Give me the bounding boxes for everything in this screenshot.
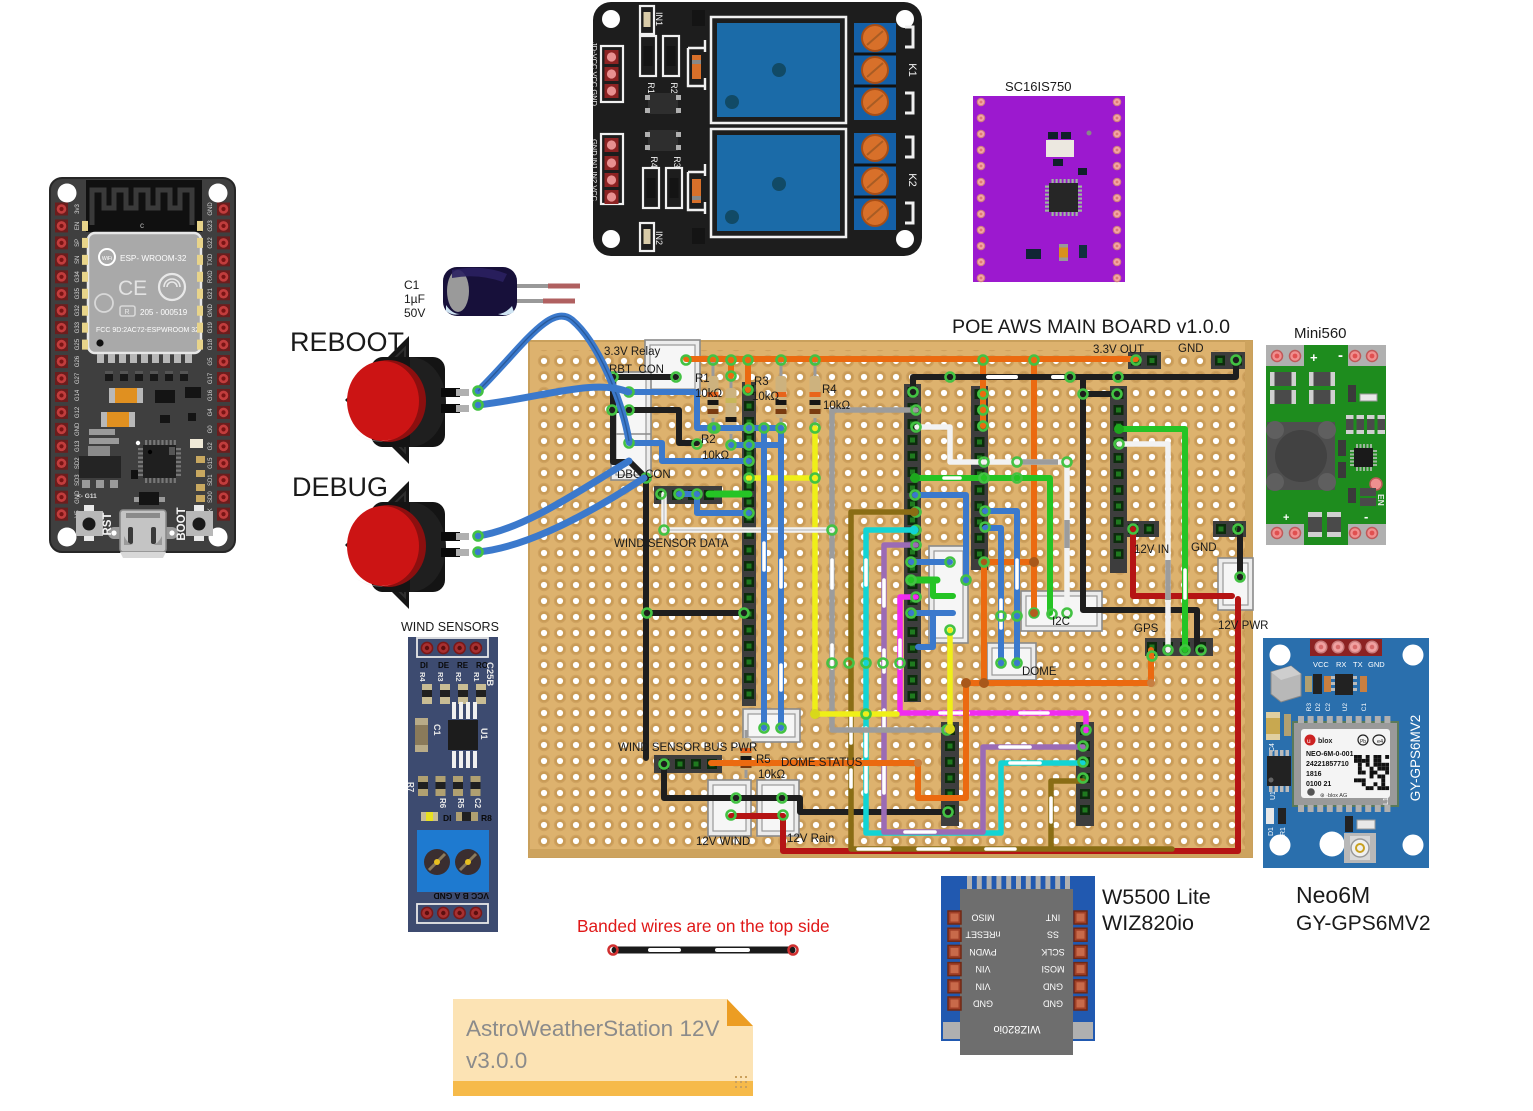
svg-text:VCC: VCC bbox=[1313, 660, 1329, 669]
svg-text:<- G11: <- G11 bbox=[77, 493, 97, 500]
svg-text:G35: G35 bbox=[75, 287, 81, 299]
svg-text:GND: GND bbox=[1178, 343, 1204, 355]
svg-text:G21: G21 bbox=[208, 287, 214, 299]
svg-text:W5500 Lite: W5500 Lite bbox=[1102, 885, 1211, 909]
svg-text:CE: CE bbox=[118, 277, 147, 300]
svg-text:G4: G4 bbox=[208, 408, 214, 417]
svg-text:SP: SP bbox=[75, 239, 81, 247]
svg-text:TX: TX bbox=[1353, 660, 1363, 669]
svg-text:12V IN: 12V IN bbox=[1134, 544, 1169, 556]
svg-text:GND: GND bbox=[1043, 981, 1064, 991]
svg-text:R1: R1 bbox=[1280, 827, 1287, 836]
svg-text:C1: C1 bbox=[1361, 703, 1368, 712]
svg-text:WIND SENSORS: WIND SENSORS bbox=[401, 620, 499, 634]
svg-text:IN2: IN2 bbox=[654, 231, 664, 245]
svg-text:DI: DI bbox=[420, 661, 428, 670]
svg-text:DEBUG: DEBUG bbox=[292, 472, 388, 502]
svg-text:GND: GND bbox=[75, 422, 81, 436]
svg-text:e4: e4 bbox=[1377, 739, 1383, 745]
svg-text:GND: GND bbox=[1191, 542, 1217, 554]
svg-text:IN1: IN1 bbox=[654, 12, 664, 26]
svg-text:RBT_CON: RBT_CON bbox=[609, 364, 664, 376]
svg-text:DOME STATUS: DOME STATUS bbox=[781, 757, 863, 769]
svg-text:GND: GND bbox=[208, 202, 214, 216]
svg-text:RX: RX bbox=[1336, 660, 1346, 669]
svg-text:Neo6M: Neo6M bbox=[1296, 882, 1370, 908]
svg-text:J1: J1 bbox=[1336, 845, 1343, 853]
svg-text:AstroWeatherStation 12V: AstroWeatherStation 12V bbox=[466, 1016, 719, 1041]
svg-text:-: - bbox=[1364, 509, 1368, 524]
svg-text:G0: G0 bbox=[208, 425, 214, 434]
svg-text:POE AWS MAIN BOARD v1.0.0: POE AWS MAIN BOARD v1.0.0 bbox=[952, 316, 1230, 338]
svg-text:VCC B A GND: VCC B A GND bbox=[433, 891, 489, 901]
svg-text:R1: R1 bbox=[695, 373, 710, 385]
svg-text:10kΩ: 10kΩ bbox=[695, 388, 723, 400]
svg-text:D2: D2 bbox=[1315, 703, 1322, 712]
svg-text:R2: R2 bbox=[454, 672, 463, 682]
svg-text:U1: U1 bbox=[479, 728, 489, 740]
svg-text:24221857710: 24221857710 bbox=[1306, 761, 1349, 768]
svg-text:SD1: SD1 bbox=[208, 474, 214, 486]
svg-text:R4: R4 bbox=[649, 156, 659, 168]
svg-text:C25B: C25B bbox=[484, 662, 495, 686]
svg-text:DOME: DOME bbox=[1022, 666, 1057, 678]
svg-text:c: c bbox=[140, 221, 144, 230]
svg-text:SCLK: SCLK bbox=[1041, 947, 1065, 957]
svg-text:BOOT: BOOT bbox=[176, 507, 188, 540]
svg-text:10kΩ: 10kΩ bbox=[823, 400, 851, 412]
svg-text:G23: G23 bbox=[208, 220, 214, 232]
svg-text:12V PWR: 12V PWR bbox=[1218, 620, 1269, 632]
svg-text:0100 21: 0100 21 bbox=[1306, 781, 1331, 788]
svg-text:GY-GPS6MV2: GY-GPS6MV2 bbox=[1408, 715, 1423, 802]
svg-text:-: - bbox=[1338, 347, 1343, 364]
svg-text:K2: K2 bbox=[906, 173, 918, 186]
svg-text:C1: C1 bbox=[432, 724, 442, 736]
svg-text:GND IN1 IN2 VCC: GND IN1 IN2 VCC bbox=[590, 139, 599, 202]
svg-text:10kΩ: 10kΩ bbox=[758, 769, 786, 781]
svg-text:3.3V OUT: 3.3V OUT bbox=[1093, 344, 1144, 356]
svg-text:G33: G33 bbox=[75, 321, 81, 333]
svg-text:INT: INT bbox=[1045, 913, 1060, 923]
svg-text:Banded wires are on the top si: Banded wires are on the top side bbox=[577, 916, 830, 936]
svg-text:R1: R1 bbox=[646, 82, 656, 94]
svg-text:K1: K1 bbox=[906, 63, 918, 76]
svg-text:R: R bbox=[124, 309, 129, 316]
svg-text:G34: G34 bbox=[75, 270, 81, 282]
svg-text:REBOOT: REBOOT bbox=[290, 327, 404, 357]
svg-text:SC16IS750: SC16IS750 bbox=[1005, 79, 1072, 94]
svg-text:RST: RST bbox=[102, 513, 114, 536]
svg-text:RE: RE bbox=[457, 661, 469, 670]
svg-text:G19: G19 bbox=[208, 321, 214, 333]
svg-text:R1: R1 bbox=[472, 672, 481, 682]
svg-text:C2: C2 bbox=[1325, 703, 1332, 712]
svg-text:FCC 9D:2AC72-ESPWROOM 32: FCC 9D:2AC72-ESPWROOM 32 bbox=[96, 327, 199, 334]
svg-text:VIN: VIN bbox=[975, 981, 990, 991]
svg-text:R3: R3 bbox=[672, 156, 682, 168]
svg-text:G5: G5 bbox=[208, 357, 214, 366]
svg-text:DI: DI bbox=[443, 813, 452, 823]
svg-text:I2C: I2C bbox=[1052, 616, 1070, 628]
svg-text:R5: R5 bbox=[456, 798, 465, 809]
svg-text:RXD: RXD bbox=[208, 270, 214, 283]
svg-text:G14: G14 bbox=[75, 389, 81, 401]
svg-text:D1: D1 bbox=[1268, 827, 1275, 836]
svg-text:10kΩ: 10kΩ bbox=[702, 450, 730, 462]
svg-text:GND: GND bbox=[208, 303, 214, 317]
svg-text:R5: R5 bbox=[756, 754, 771, 766]
svg-text:WIND SENSOR DATA: WIND SENSOR DATA bbox=[614, 538, 729, 550]
svg-text:+: + bbox=[1283, 512, 1289, 524]
svg-text:R3: R3 bbox=[436, 672, 445, 682]
svg-text:Pb: Pb bbox=[1360, 739, 1366, 745]
svg-text:G32: G32 bbox=[75, 304, 81, 316]
svg-text:10kΩ: 10kΩ bbox=[752, 391, 780, 403]
svg-text:PWDN: PWDN bbox=[969, 947, 997, 957]
svg-text:WIZ820io: WIZ820io bbox=[1102, 911, 1194, 935]
svg-text:12V Rain: 12V Rain bbox=[787, 833, 834, 845]
svg-text:G18: G18 bbox=[208, 338, 214, 350]
svg-text:1816: 1816 bbox=[1306, 771, 1322, 778]
svg-text:DE: DE bbox=[438, 661, 450, 670]
svg-text:R4: R4 bbox=[822, 384, 837, 396]
svg-text:R4: R4 bbox=[418, 672, 427, 682]
svg-text:G26: G26 bbox=[75, 355, 81, 367]
svg-text:50V: 50V bbox=[404, 306, 425, 320]
svg-text:3v3: 3v3 bbox=[75, 204, 81, 214]
svg-text:VIN: VIN bbox=[975, 964, 990, 974]
svg-text:WiFi: WiFi bbox=[102, 256, 112, 262]
svg-text:R2: R2 bbox=[669, 82, 679, 94]
svg-text:1µF: 1µF bbox=[404, 292, 425, 306]
svg-text:GND: GND bbox=[1368, 660, 1385, 669]
svg-text:Mini560: Mini560 bbox=[1294, 325, 1347, 342]
svg-text:G17: G17 bbox=[208, 372, 214, 384]
svg-text:MISO: MISO bbox=[971, 913, 994, 923]
svg-text:NEO-6M-0-001: NEO-6M-0-001 bbox=[1306, 751, 1354, 758]
svg-text:G27: G27 bbox=[75, 372, 81, 384]
svg-text:⊛ ·blox AG: ⊛ ·blox AG bbox=[1320, 793, 1347, 799]
svg-text:nRESET: nRESET bbox=[965, 930, 1001, 940]
svg-text:R8: R8 bbox=[481, 813, 492, 823]
svg-text:WIZ820io: WIZ820io bbox=[993, 1023, 1040, 1035]
svg-text:ESP- WROOM-32: ESP- WROOM-32 bbox=[120, 254, 187, 263]
svg-text:SS: SS bbox=[1047, 930, 1059, 940]
svg-text:v3.0.0: v3.0.0 bbox=[466, 1048, 527, 1073]
svg-text:G15: G15 bbox=[208, 457, 214, 469]
svg-text:R3: R3 bbox=[754, 376, 769, 388]
svg-text:G25: G25 bbox=[75, 338, 81, 350]
svg-text:GND: GND bbox=[973, 999, 994, 1009]
svg-text:L1: L1 bbox=[1383, 797, 1390, 805]
svg-text:EN: EN bbox=[75, 222, 81, 230]
svg-text:WIND SENSOR BUS PWR: WIND SENSOR BUS PWR bbox=[618, 742, 757, 754]
svg-text:R3: R3 bbox=[1306, 703, 1313, 712]
svg-text:TXD: TXD bbox=[208, 253, 214, 266]
svg-text:U1: U1 bbox=[1270, 791, 1277, 800]
svg-text:+: + bbox=[1310, 350, 1318, 365]
svg-text:EN: EN bbox=[1376, 494, 1386, 506]
svg-text:R6: R6 bbox=[438, 798, 447, 809]
svg-text:C2: C2 bbox=[473, 798, 482, 809]
svg-text:SD0: SD0 bbox=[208, 491, 214, 503]
svg-text:R2: R2 bbox=[701, 434, 716, 446]
svg-text:C1: C1 bbox=[404, 278, 420, 292]
svg-text:G16: G16 bbox=[208, 389, 214, 401]
svg-text:G2: G2 bbox=[208, 442, 214, 451]
svg-text:R7: R7 bbox=[406, 782, 415, 793]
svg-text:MOSI: MOSI bbox=[1041, 964, 1064, 974]
svg-text:205 - 000519: 205 - 000519 bbox=[140, 308, 188, 317]
svg-text:GND: GND bbox=[1043, 999, 1064, 1009]
svg-text:U2: U2 bbox=[1342, 703, 1349, 712]
svg-text:G13: G13 bbox=[75, 440, 81, 452]
svg-text:blox: blox bbox=[1318, 738, 1332, 745]
svg-text:u: u bbox=[1307, 738, 1311, 745]
svg-text:SN: SN bbox=[75, 256, 81, 264]
svg-text:GPS: GPS bbox=[1134, 623, 1159, 635]
svg-text:12V WIND: 12V WIND bbox=[696, 836, 750, 848]
svg-text:GY-GPS6MV2: GY-GPS6MV2 bbox=[1296, 912, 1431, 935]
svg-text:G22: G22 bbox=[208, 237, 214, 249]
svg-text:JD-VCC VCC GND: JD-VCC VCC GND bbox=[590, 42, 599, 107]
svg-text:3.3V Relay: 3.3V Relay bbox=[604, 346, 661, 358]
svg-text:G12: G12 bbox=[75, 406, 81, 418]
